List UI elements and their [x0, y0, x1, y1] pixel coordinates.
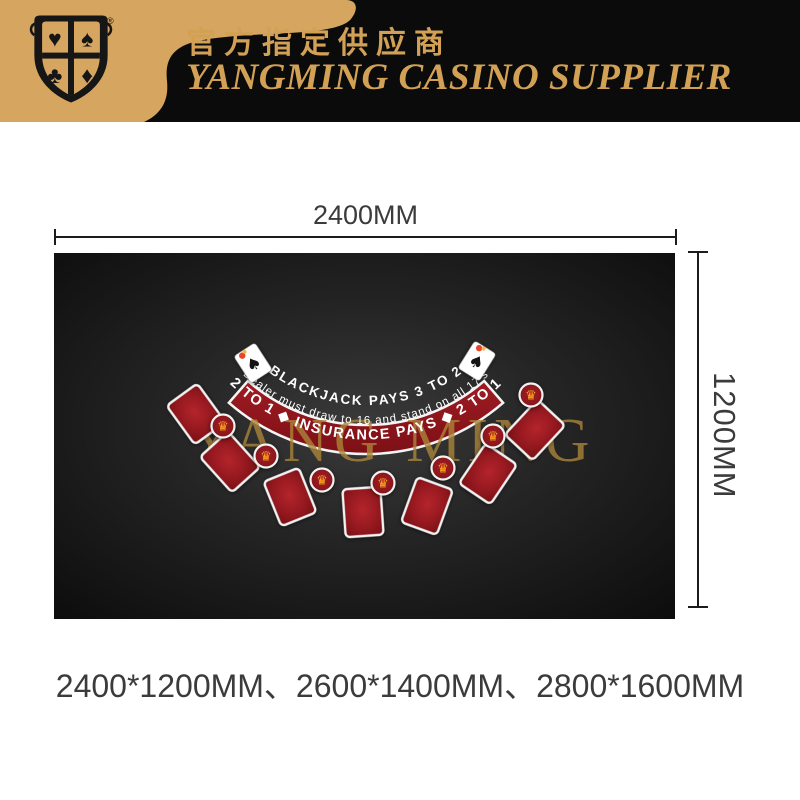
heart-suit-icon: ♥ [48, 26, 62, 52]
crown-icon: ♛ [217, 420, 229, 435]
width-dimension-label: 2400MM [54, 200, 677, 231]
blackjack-felt: YANG MING BLACKJACK PAYS 3 TO 2 Dealer m… [54, 253, 675, 619]
bet-circle: ♛ [432, 457, 455, 480]
crown-icon: ♛ [316, 474, 328, 489]
available-sizes-label: 2400*1200MM、2600*1400MM、2800*1600MM [0, 661, 800, 707]
bet-circle: ♛ [482, 425, 505, 448]
bet-circle: ♛ [372, 472, 395, 495]
crown-icon: ♛ [260, 450, 272, 465]
header-banner: ♥ ♠ ♣ ♦ ® 官方指定供应商 YANGMING CASINO SUPPLI… [0, 0, 800, 122]
bet-circle: ♛ [520, 384, 543, 407]
height-dimension-cap-bottom [688, 606, 708, 608]
crown-icon: ♛ [437, 462, 449, 477]
crown-icon: ♛ [377, 477, 389, 492]
crown-icon: ♛ [525, 389, 537, 404]
bet-circle: ♛ [212, 415, 235, 438]
card-spot [342, 487, 383, 538]
spade-suit-icon: ♠ [81, 26, 93, 52]
height-dimension-line [697, 252, 699, 608]
crown-icon: ♛ [487, 430, 499, 445]
registered-trademark: ® [107, 16, 114, 26]
width-dimension-tick-left [54, 229, 56, 245]
width-dimension-line [54, 236, 677, 238]
bet-circle: ♛ [255, 445, 278, 468]
height-dimension-label: 1200MM [706, 372, 742, 499]
width-dimension-tick-right [675, 229, 677, 245]
brand-logo-shield: ♥ ♠ ♣ ♦ ® [28, 13, 114, 105]
brand-title: YANGMING CASINO SUPPLIER [186, 56, 732, 99]
height-dimension-cap-top [688, 251, 708, 253]
bet-circle: ♛ [311, 469, 334, 492]
